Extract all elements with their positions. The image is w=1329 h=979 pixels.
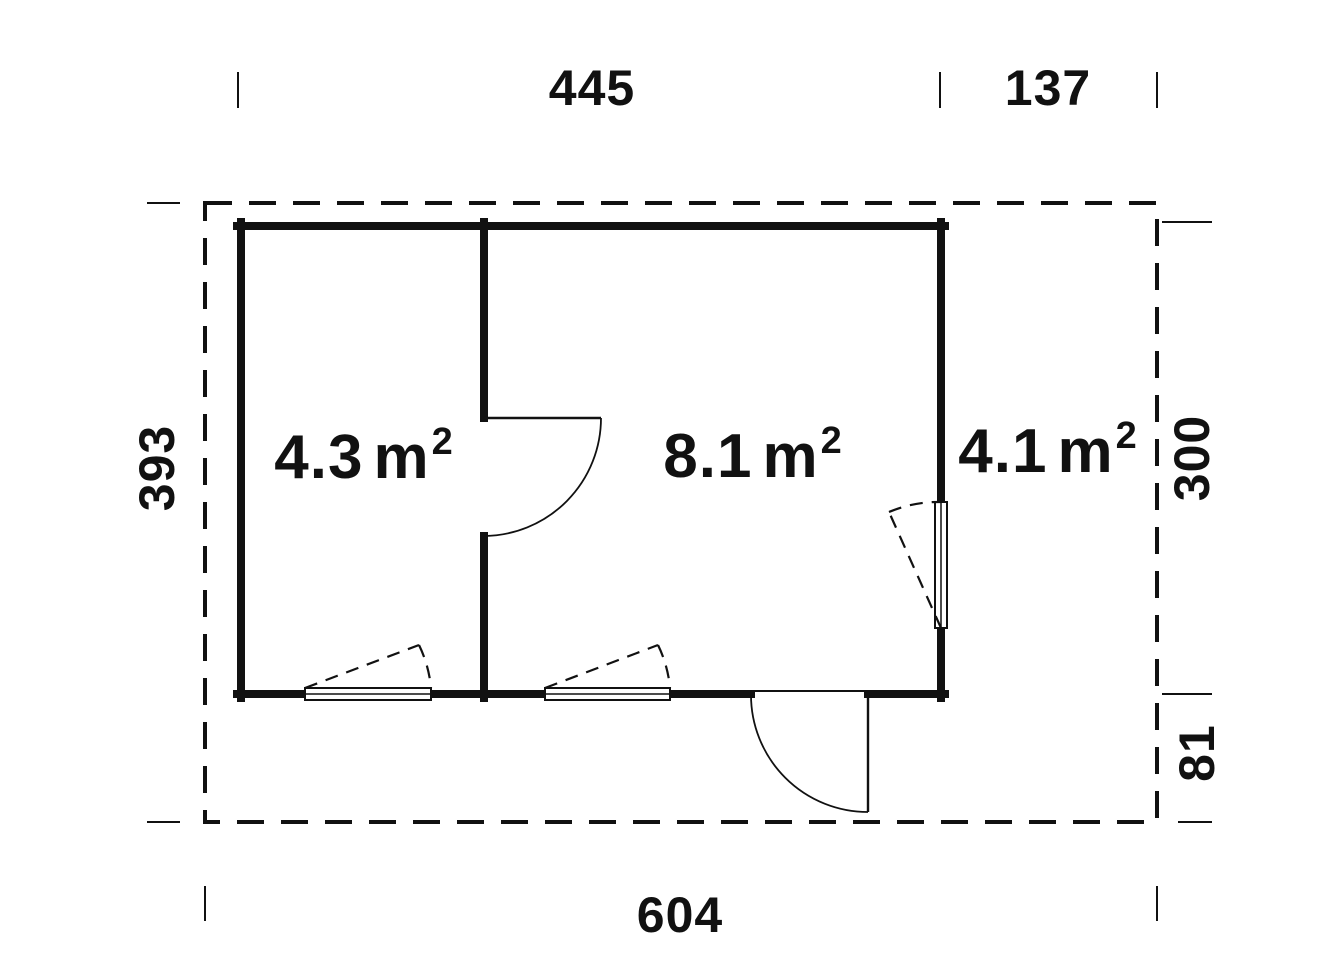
room-area-superscript: 2 xyxy=(821,420,843,462)
roof-outline xyxy=(205,203,1157,822)
room-area-value: 4.3 xyxy=(274,423,363,492)
room-area-value: 8.1 xyxy=(663,422,752,491)
window-main-room-swing-arc xyxy=(658,645,670,688)
entrance-door xyxy=(751,695,868,812)
floor-plan: 445 137 393 300 81 604 4.3m2 8.1m2 4.1m2 xyxy=(0,0,1329,979)
window-main-room-swing xyxy=(545,645,658,688)
dimension-label-porch-depth: 81 xyxy=(1172,724,1222,782)
room-area-unit: m xyxy=(373,423,429,492)
dimension-label-total-width: 604 xyxy=(637,890,723,940)
room-area-unit: m xyxy=(762,422,818,491)
room-area-label-left-room: 4.3m2 xyxy=(274,427,453,489)
room-area-superscript: 2 xyxy=(1116,415,1138,457)
window-main-room xyxy=(545,645,670,700)
room-area-label-main-room: 8.1m2 xyxy=(663,426,842,488)
room-area-label-terrace: 4.1m2 xyxy=(958,421,1137,483)
window-left-room-swing xyxy=(305,645,419,688)
room-area-value: 4.1 xyxy=(958,417,1047,486)
dimension-label-total-depth: 393 xyxy=(132,425,182,511)
room-area-unit: m xyxy=(1057,417,1113,486)
window-side-wall-swing-arc xyxy=(889,502,941,512)
dimension-ticks xyxy=(147,72,1212,921)
dimension-label-building-width: 445 xyxy=(549,63,635,113)
dimension-label-terrace-width: 137 xyxy=(1005,63,1091,113)
window-left-room-swing-arc xyxy=(419,645,431,688)
entrance-door-swing-arc xyxy=(751,695,868,812)
window-side-wall-swing xyxy=(889,512,941,628)
interior-door xyxy=(484,418,601,536)
room-area-superscript: 2 xyxy=(432,421,454,463)
window-side-wall xyxy=(889,502,947,628)
dimension-label-building-depth: 300 xyxy=(1167,415,1217,501)
window-left-room xyxy=(305,645,431,700)
interior-door-swing-arc xyxy=(484,418,601,536)
